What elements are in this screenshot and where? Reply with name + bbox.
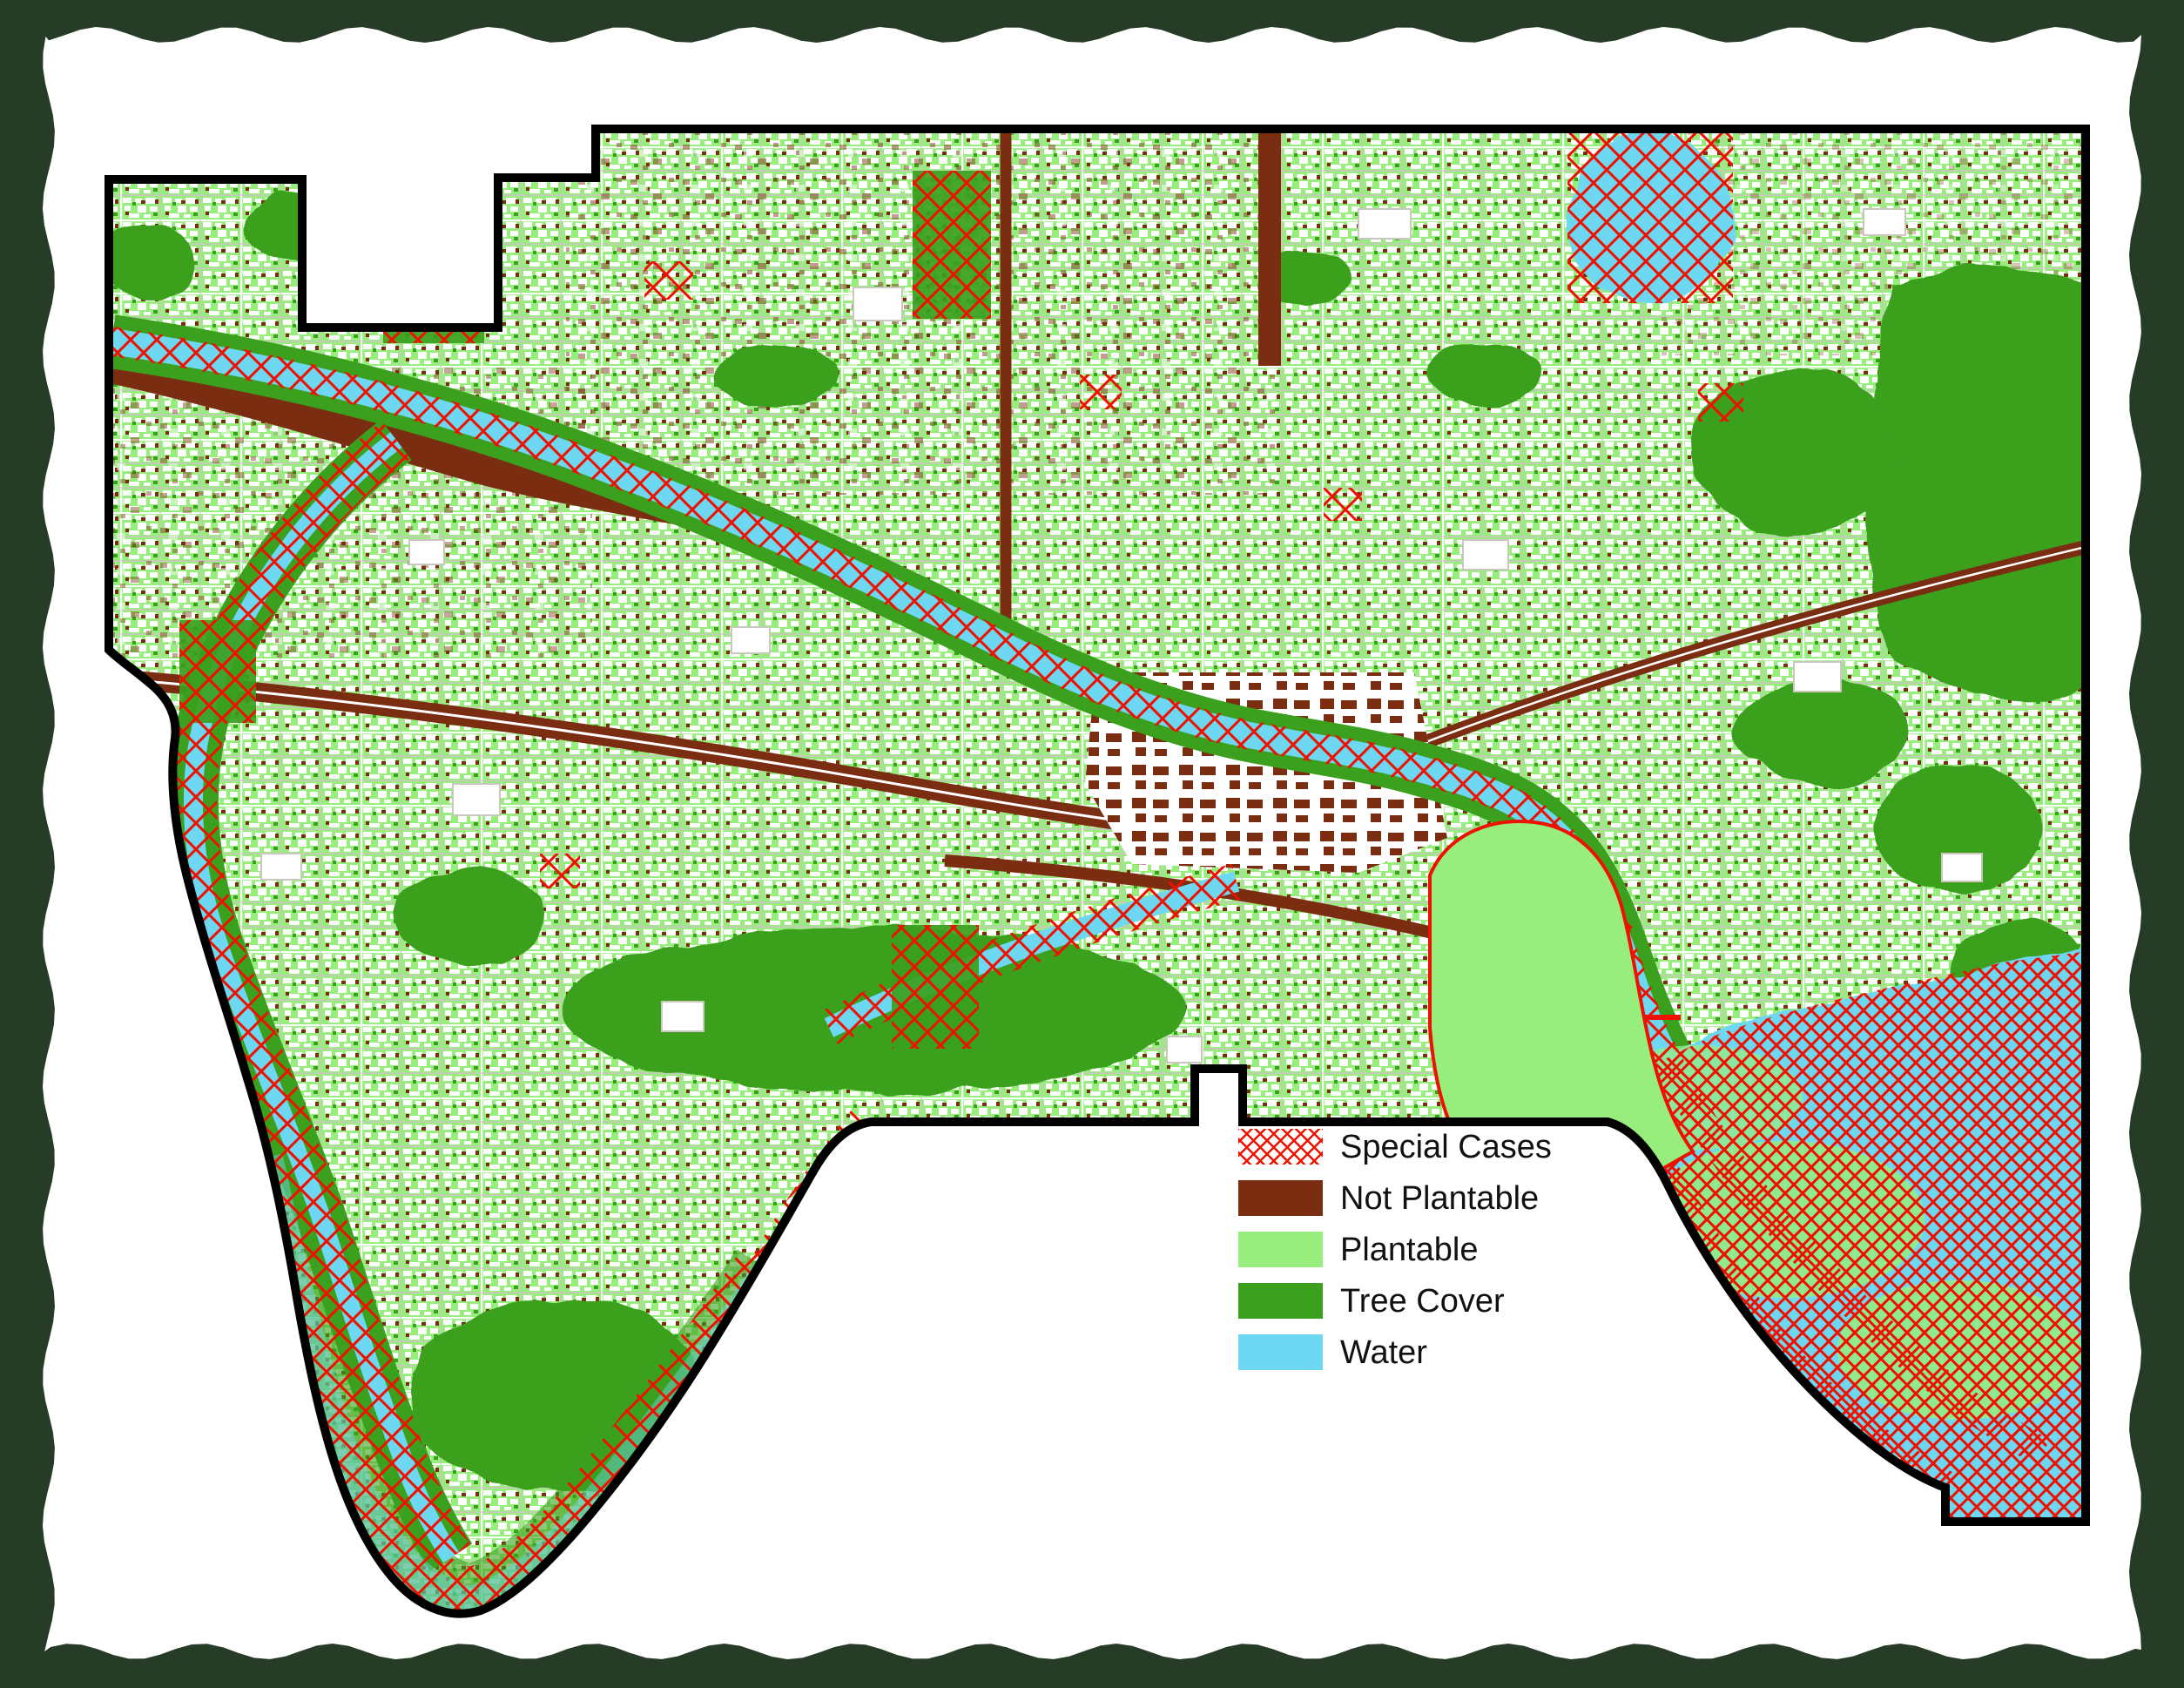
legend-item-water: Water [1238,1334,1552,1370]
plantable-areas-map-page: Special Cases Not Plantable Plantable Tr… [0,0,2184,1688]
tree-cover-swatch [1238,1283,1323,1319]
legend-item-special-cases: Special Cases [1238,1129,1552,1165]
legend-label: Plantable [1340,1233,1478,1266]
legend: Special Cases Not Plantable Plantable Tr… [1238,1129,1552,1386]
legend-label: Special Cases [1340,1131,1552,1164]
plantable-swatch [1238,1232,1323,1267]
legend-label: Water [1340,1336,1427,1369]
legend-item-not-plantable: Not Plantable [1238,1180,1552,1216]
legend-item-plantable: Plantable [1238,1232,1552,1267]
legend-label: Not Plantable [1340,1182,1539,1215]
legend-item-tree-cover: Tree Cover [1238,1283,1552,1319]
water-swatch [1238,1334,1323,1370]
special-cases-swatch [1238,1129,1323,1165]
not-plantable-swatch [1238,1180,1323,1216]
map-interior [96,113,2099,1629]
legend-label: Tree Cover [1340,1285,1505,1318]
city-plantability-map [0,0,2184,1688]
